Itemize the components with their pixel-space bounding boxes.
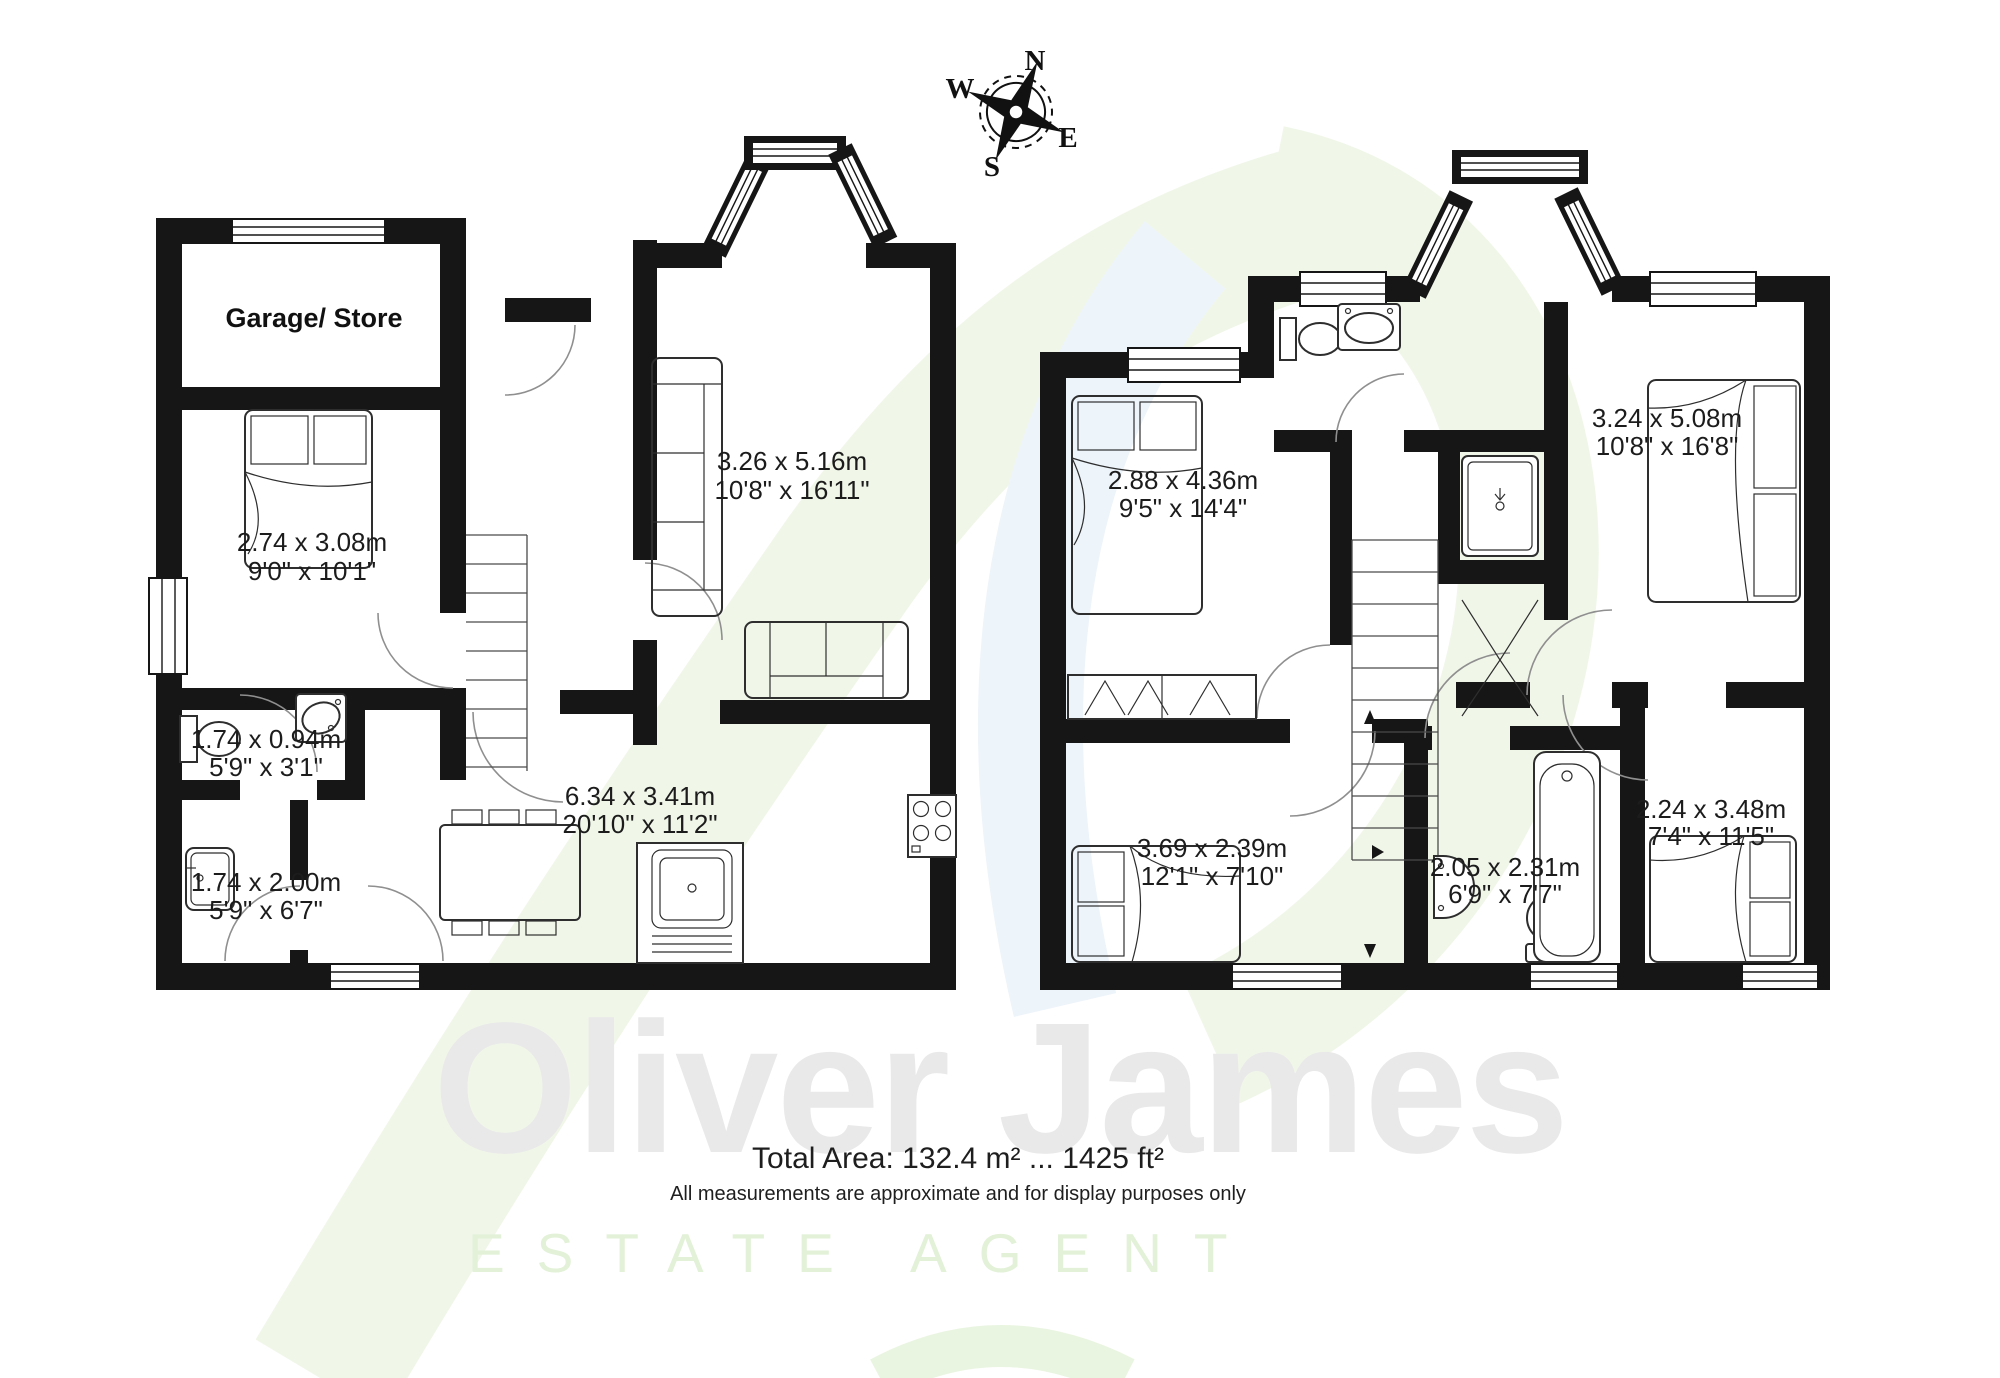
label-bedroom3-imperial: 12'1" x 7'10" xyxy=(1141,861,1284,891)
label-bathroom-metric: 2.05 x 2.31m xyxy=(1430,852,1580,882)
back-door xyxy=(330,964,420,989)
label-bathroom-imperial: 6'9" x 7'7" xyxy=(1448,879,1562,909)
floorplan-page: Oliver James ESTATE AGENT N W E S xyxy=(0,0,2000,1378)
compass-n-label: N xyxy=(1025,45,1046,77)
shower-icon-first xyxy=(1462,456,1538,556)
label-wc-imperial: 5'9" x 3'1" xyxy=(209,752,323,782)
label-kitchen-imperial: 20'10" x 11'2" xyxy=(562,809,717,839)
label-living-imperial: 10'8" x 16'11" xyxy=(714,475,869,505)
sink-icon-first-wc xyxy=(1338,304,1400,350)
disclaimer-text: All measurements are approximate and for… xyxy=(670,1183,1246,1205)
floorplan-svg: Oliver James ESTATE AGENT N W E S xyxy=(0,0,2000,1378)
compass-w-label: W xyxy=(946,73,975,105)
hob-icon xyxy=(908,795,956,857)
label-bedroom1-metric: 2.88 x 4.36m xyxy=(1108,465,1258,495)
bed-icon-bedroom4 xyxy=(1650,836,1796,962)
swoosh-bottom-arc xyxy=(880,1346,1125,1378)
label-bedroom3-metric: 3.69 x 2.39m xyxy=(1137,833,1287,863)
total-area-text: Total Area: 132.4 m² ... 1425 ft² xyxy=(752,1142,1164,1175)
label-shower-imperial: 5'9" x 6'7" xyxy=(209,895,323,925)
compass-icon: N W E S xyxy=(946,41,1086,183)
label-living-metric: 3.26 x 5.16m xyxy=(717,446,867,476)
toilet-icon-first-wc xyxy=(1280,318,1341,360)
label-garage: Garage/ Store xyxy=(225,303,402,333)
label-bedroom2-imperial: 10'8" x 16'8" xyxy=(1596,431,1739,461)
kitchen-sink-unit-icon xyxy=(637,843,743,963)
label-kitchen-metric: 6.34 x 3.41m xyxy=(565,781,715,811)
side-window xyxy=(149,578,187,674)
label-bedroom-metric: 2.74 x 3.08m xyxy=(237,527,387,557)
stairs-icon-ground xyxy=(466,535,527,771)
compass-e-label: E xyxy=(1058,122,1077,154)
label-bedroom1-imperial: 9'5" x 14'4" xyxy=(1119,493,1247,523)
garage-door xyxy=(232,219,385,243)
sofa-icon-large xyxy=(652,358,722,616)
label-bedroom4-metric: 2.24 x 3.48m xyxy=(1636,794,1786,824)
label-bedroom2-metric: 3.24 x 5.08m xyxy=(1592,403,1742,433)
label-wc-metric: 1.74 x 0.94m xyxy=(191,724,341,754)
label-shower-metric: 1.74 x 2.00m xyxy=(191,867,341,897)
label-bedroom4-imperial: 7'4" x 11'5" xyxy=(1648,821,1774,851)
wardrobe-icon xyxy=(1068,675,1256,719)
watermark-tagline: ESTATE AGENT xyxy=(468,1222,1259,1284)
ground-bay-window xyxy=(702,136,897,258)
compass-s-label: S xyxy=(984,151,1000,183)
label-bedroom-imperial: 9'0" x 10'1" xyxy=(248,556,376,586)
